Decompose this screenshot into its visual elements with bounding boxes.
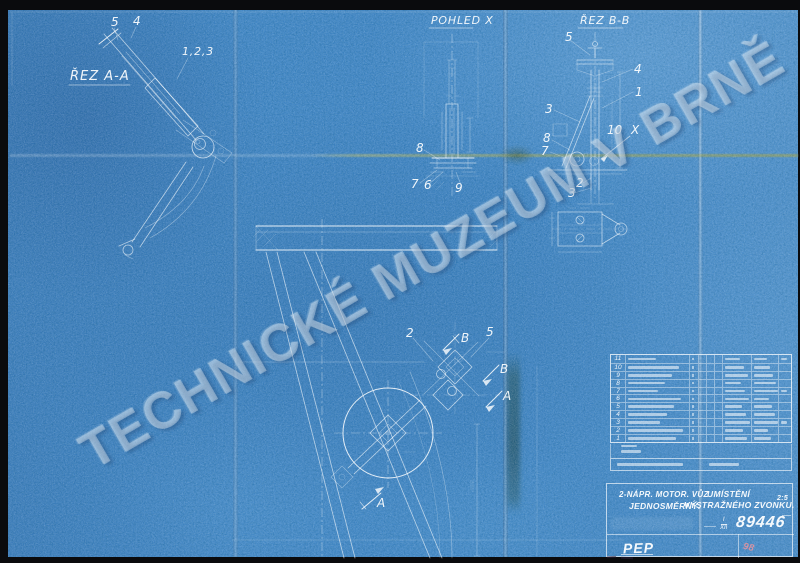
row-dims	[751, 435, 778, 442]
row-number: 9	[611, 372, 625, 379]
row-number: 8	[611, 380, 625, 387]
row-remark	[778, 364, 791, 371]
table-row: 9	[611, 371, 791, 379]
subrow-note	[621, 445, 637, 448]
row-material	[722, 435, 751, 442]
row-description	[625, 435, 689, 442]
tape-stain	[507, 352, 520, 514]
table-row: 4	[611, 410, 791, 418]
row-description	[625, 364, 689, 371]
row-description	[625, 388, 689, 395]
row-qty	[689, 355, 698, 363]
row-description	[625, 372, 689, 379]
table-row: 3	[611, 418, 791, 426]
row-qty	[689, 380, 698, 387]
sheet-fraction-denominator: XII	[720, 525, 727, 532]
row-material	[722, 355, 751, 363]
parts-table: 1110987654321	[610, 354, 792, 471]
row-material	[722, 403, 751, 410]
row-remark	[778, 355, 791, 363]
row-description	[625, 355, 689, 363]
row-material	[722, 411, 751, 418]
title-dash	[704, 526, 716, 527]
row-description	[625, 403, 689, 410]
row-remark	[778, 435, 791, 442]
row-remark	[778, 419, 791, 426]
row-remark	[778, 372, 791, 379]
row-dims	[751, 403, 778, 410]
title-block-divider-h	[607, 534, 794, 535]
table-row: 8	[611, 379, 791, 387]
stain-knot	[499, 145, 535, 165]
row-dims	[751, 380, 778, 387]
drawing-number: 89446	[735, 514, 786, 532]
table-row: 11	[611, 355, 791, 363]
row-material	[722, 388, 751, 395]
parts-table-footer	[610, 458, 792, 471]
row-description	[625, 411, 689, 418]
parts-table-rows: 1110987654321	[610, 354, 792, 443]
row-remark	[778, 411, 791, 418]
row-number: 1	[611, 435, 625, 442]
row-qty	[689, 435, 698, 442]
row-number: 10	[611, 364, 625, 371]
sheet-fraction-numerator: I	[721, 517, 727, 525]
row-dims	[751, 395, 778, 402]
blueprint-scan: ŘEZ A-A 5 4 1,2,3	[0, 0, 800, 563]
table-row: 2	[611, 426, 791, 434]
table-row: 1	[611, 434, 791, 442]
parts-table-subrows	[610, 444, 792, 458]
fold-crease-left	[233, 10, 238, 557]
title-block-divider-v	[738, 534, 739, 558]
row-number: 4	[611, 411, 625, 418]
row-description	[625, 427, 689, 434]
corner-note: 98	[742, 541, 755, 554]
row-number: 2	[611, 427, 625, 434]
row-number: 6	[611, 395, 625, 402]
row-number: 5	[611, 403, 625, 410]
row-material	[722, 364, 751, 371]
row-dims	[751, 355, 778, 363]
row-qty	[689, 411, 698, 418]
pencil-mark	[607, 556, 616, 558]
row-qty	[689, 395, 698, 402]
blueprint-paper	[8, 10, 798, 557]
initials-underline	[621, 554, 653, 555]
pencil-mark	[621, 557, 633, 559]
fold-crease-right	[698, 10, 703, 557]
row-remark	[778, 388, 791, 395]
row-description	[625, 419, 689, 426]
row-remark	[778, 403, 791, 410]
row-description	[625, 380, 689, 387]
row-number: 11	[611, 355, 625, 363]
row-material	[722, 427, 751, 434]
table-row: 5	[611, 402, 791, 410]
ghost-stamp	[611, 517, 693, 530]
table-row: 6	[611, 394, 791, 402]
row-remark	[778, 380, 791, 387]
drawing-title-line1: UMÍSTĚNÍ	[707, 489, 750, 499]
vehicle-type-line1: 2-NÁPR. MOTOR. VŮZ	[619, 490, 709, 499]
row-dims	[751, 364, 778, 371]
number-dash	[782, 515, 791, 516]
row-number: 7	[611, 388, 625, 395]
row-material	[722, 372, 751, 379]
sheet-fraction: I XII	[720, 517, 727, 531]
row-number: 3	[611, 419, 625, 426]
row-material	[722, 419, 751, 426]
row-dims	[751, 388, 778, 395]
footer-number-text	[709, 463, 739, 466]
table-row: 7	[611, 387, 791, 395]
fold-crease-horizontal	[10, 154, 798, 157]
row-remark	[778, 395, 791, 402]
title-block: 2-NÁPR. MOTOR. VŮZ JEDNOSMĚRNÝ. UMÍSTĚNÍ…	[606, 483, 793, 557]
footer-company-text	[617, 463, 683, 466]
row-dims	[751, 427, 778, 434]
table-row: 10	[611, 363, 791, 371]
row-material	[722, 380, 751, 387]
row-qty	[689, 372, 698, 379]
row-dims	[751, 411, 778, 418]
row-remark	[778, 427, 791, 434]
row-qty	[689, 364, 698, 371]
row-qty	[689, 388, 698, 395]
scale-value: 2:5	[777, 495, 788, 502]
row-qty	[689, 419, 698, 426]
subrow-note	[621, 450, 641, 453]
row-qty	[689, 427, 698, 434]
row-qty	[689, 403, 698, 410]
row-dims	[751, 372, 778, 379]
row-material	[722, 395, 751, 402]
row-description	[625, 395, 689, 402]
row-dims	[751, 419, 778, 426]
